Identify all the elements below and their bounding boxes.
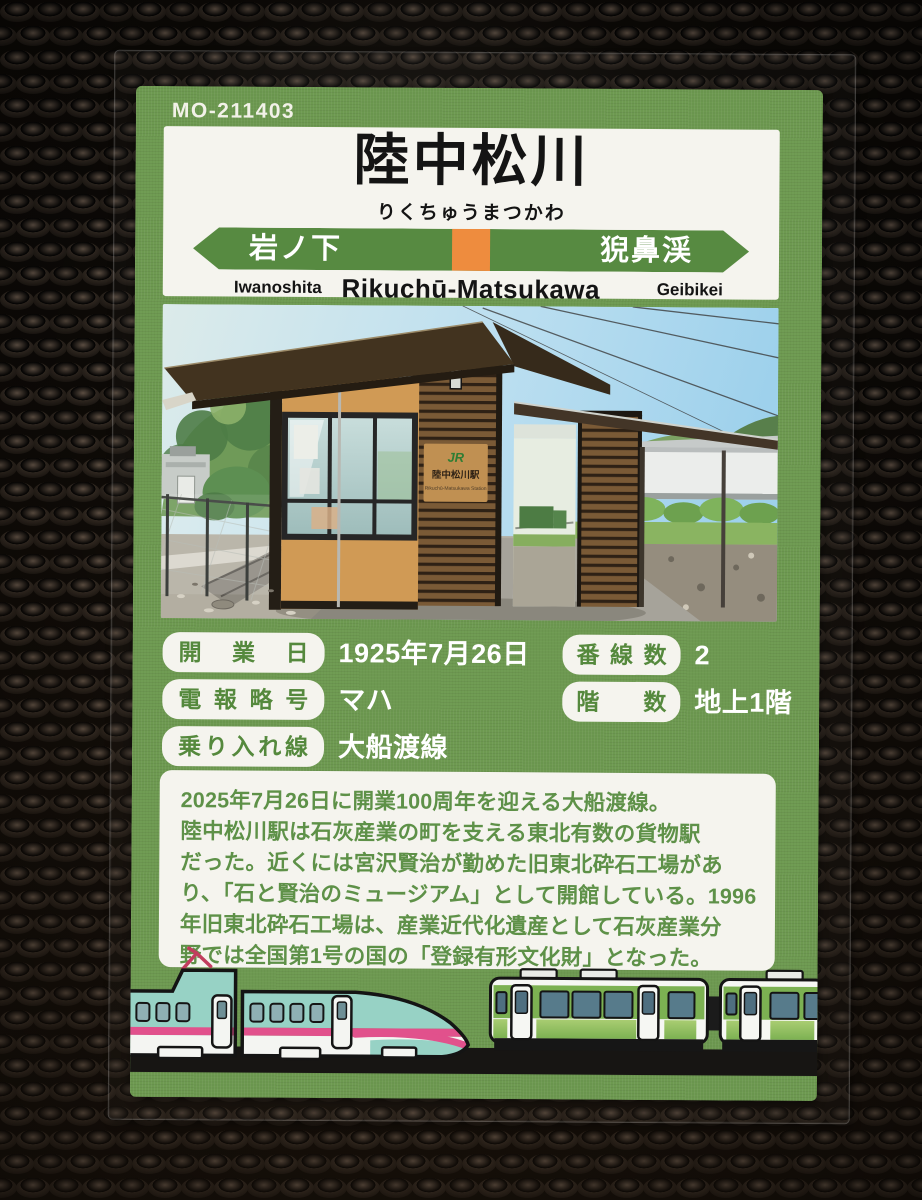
view-through-passage — [513, 506, 576, 606]
station-sign-bar: 岩ノ下 猊鼻渓 — [193, 227, 749, 272]
description-line: 陸中松川駅は石灰産業の町を支える東北有数の貨物駅 — [180, 816, 754, 851]
station-photo: JR 陸中松川駅 Rikuchū-Matsukawa Station — [161, 304, 779, 622]
value-opening-date: 1925年7月26日 — [338, 633, 529, 674]
label-floors: 階数 — [562, 681, 680, 722]
description-line: だった。近くには宮沢賢治が勤めた旧東北砕石工場があ — [180, 847, 754, 882]
value-floors: 地上1階 — [694, 682, 792, 723]
photo-of-station-card: MO-211403 陸中松川 りくちゅうまつかわ 岩ノ下 猊鼻渓 Iwanosh… — [0, 0, 922, 1200]
value-telegraph-code: マハ — [338, 680, 393, 720]
description-line: 年旧東北砕石工場は、産業近代化遺産として石灰産業分 — [180, 909, 754, 944]
description-line: 2025年7月26日に開業100周年を迎える大船渡線。 — [181, 785, 755, 820]
next-station-romaji: Geibikei — [615, 280, 765, 301]
value-track-count: 2 — [694, 635, 710, 675]
line-color-block — [452, 229, 490, 271]
station-card: MO-211403 陸中松川 りくちゅうまつかわ 岩ノ下 猊鼻渓 Iwanosh… — [130, 86, 823, 1101]
shinkansen-illustration — [130, 948, 473, 1060]
station-name: 陸中松川 — [163, 124, 779, 198]
romaji-row: Iwanoshita Rikuchū-Matsukawa Geibikei — [193, 272, 749, 301]
train-illustrations — [130, 943, 818, 1101]
manhole — [212, 600, 234, 609]
station-name-kana: りくちゅうまつかわ — [163, 196, 779, 227]
header-panel: 陸中松川 りくちゅうまつかわ 岩ノ下 猊鼻渓 Iwanoshita Rikuch… — [163, 126, 780, 300]
value-connecting-line: 大船渡線 — [338, 727, 448, 768]
waiting-room-window — [284, 415, 415, 538]
label-track-count: 番線数 — [562, 634, 680, 675]
station-sign-plaque: JR 陸中松川駅 Rikuchū-Matsukawa Station — [424, 444, 488, 502]
next-station-name: 猊鼻渓 — [600, 230, 693, 273]
previous-station-name: 岩ノ下 — [249, 228, 342, 271]
plaque-station-romaji: Rikuchū-Matsukawa Station — [425, 486, 487, 492]
shinkansen-windows — [136, 1003, 189, 1021]
shelter-post — [639, 447, 645, 607]
label-telegraph-code: 電報略号 — [162, 679, 324, 720]
card-serial-number: MO-211403 — [172, 99, 295, 124]
plaque-station-name: 陸中松川駅 — [432, 469, 480, 481]
description-line: り、「石と賢治のミュージアム」として開館している。1996 — [180, 878, 754, 913]
pantograph — [183, 948, 211, 969]
jr-logo: JR — [447, 450, 464, 465]
label-connecting-line: 乗り入れ線区 — [162, 726, 324, 767]
description-box: 2025年7月26日に開業100周年を迎える大船渡線。 陸中松川駅は石灰産業の町… — [159, 770, 776, 971]
card-sleeve: MO-211403 陸中松川 りくちゅうまつかわ 岩ノ下 猊鼻渓 Iwanosh… — [108, 50, 857, 1125]
local-train-illustration — [490, 969, 818, 1052]
label-opening-date: 開業日 — [162, 632, 324, 673]
